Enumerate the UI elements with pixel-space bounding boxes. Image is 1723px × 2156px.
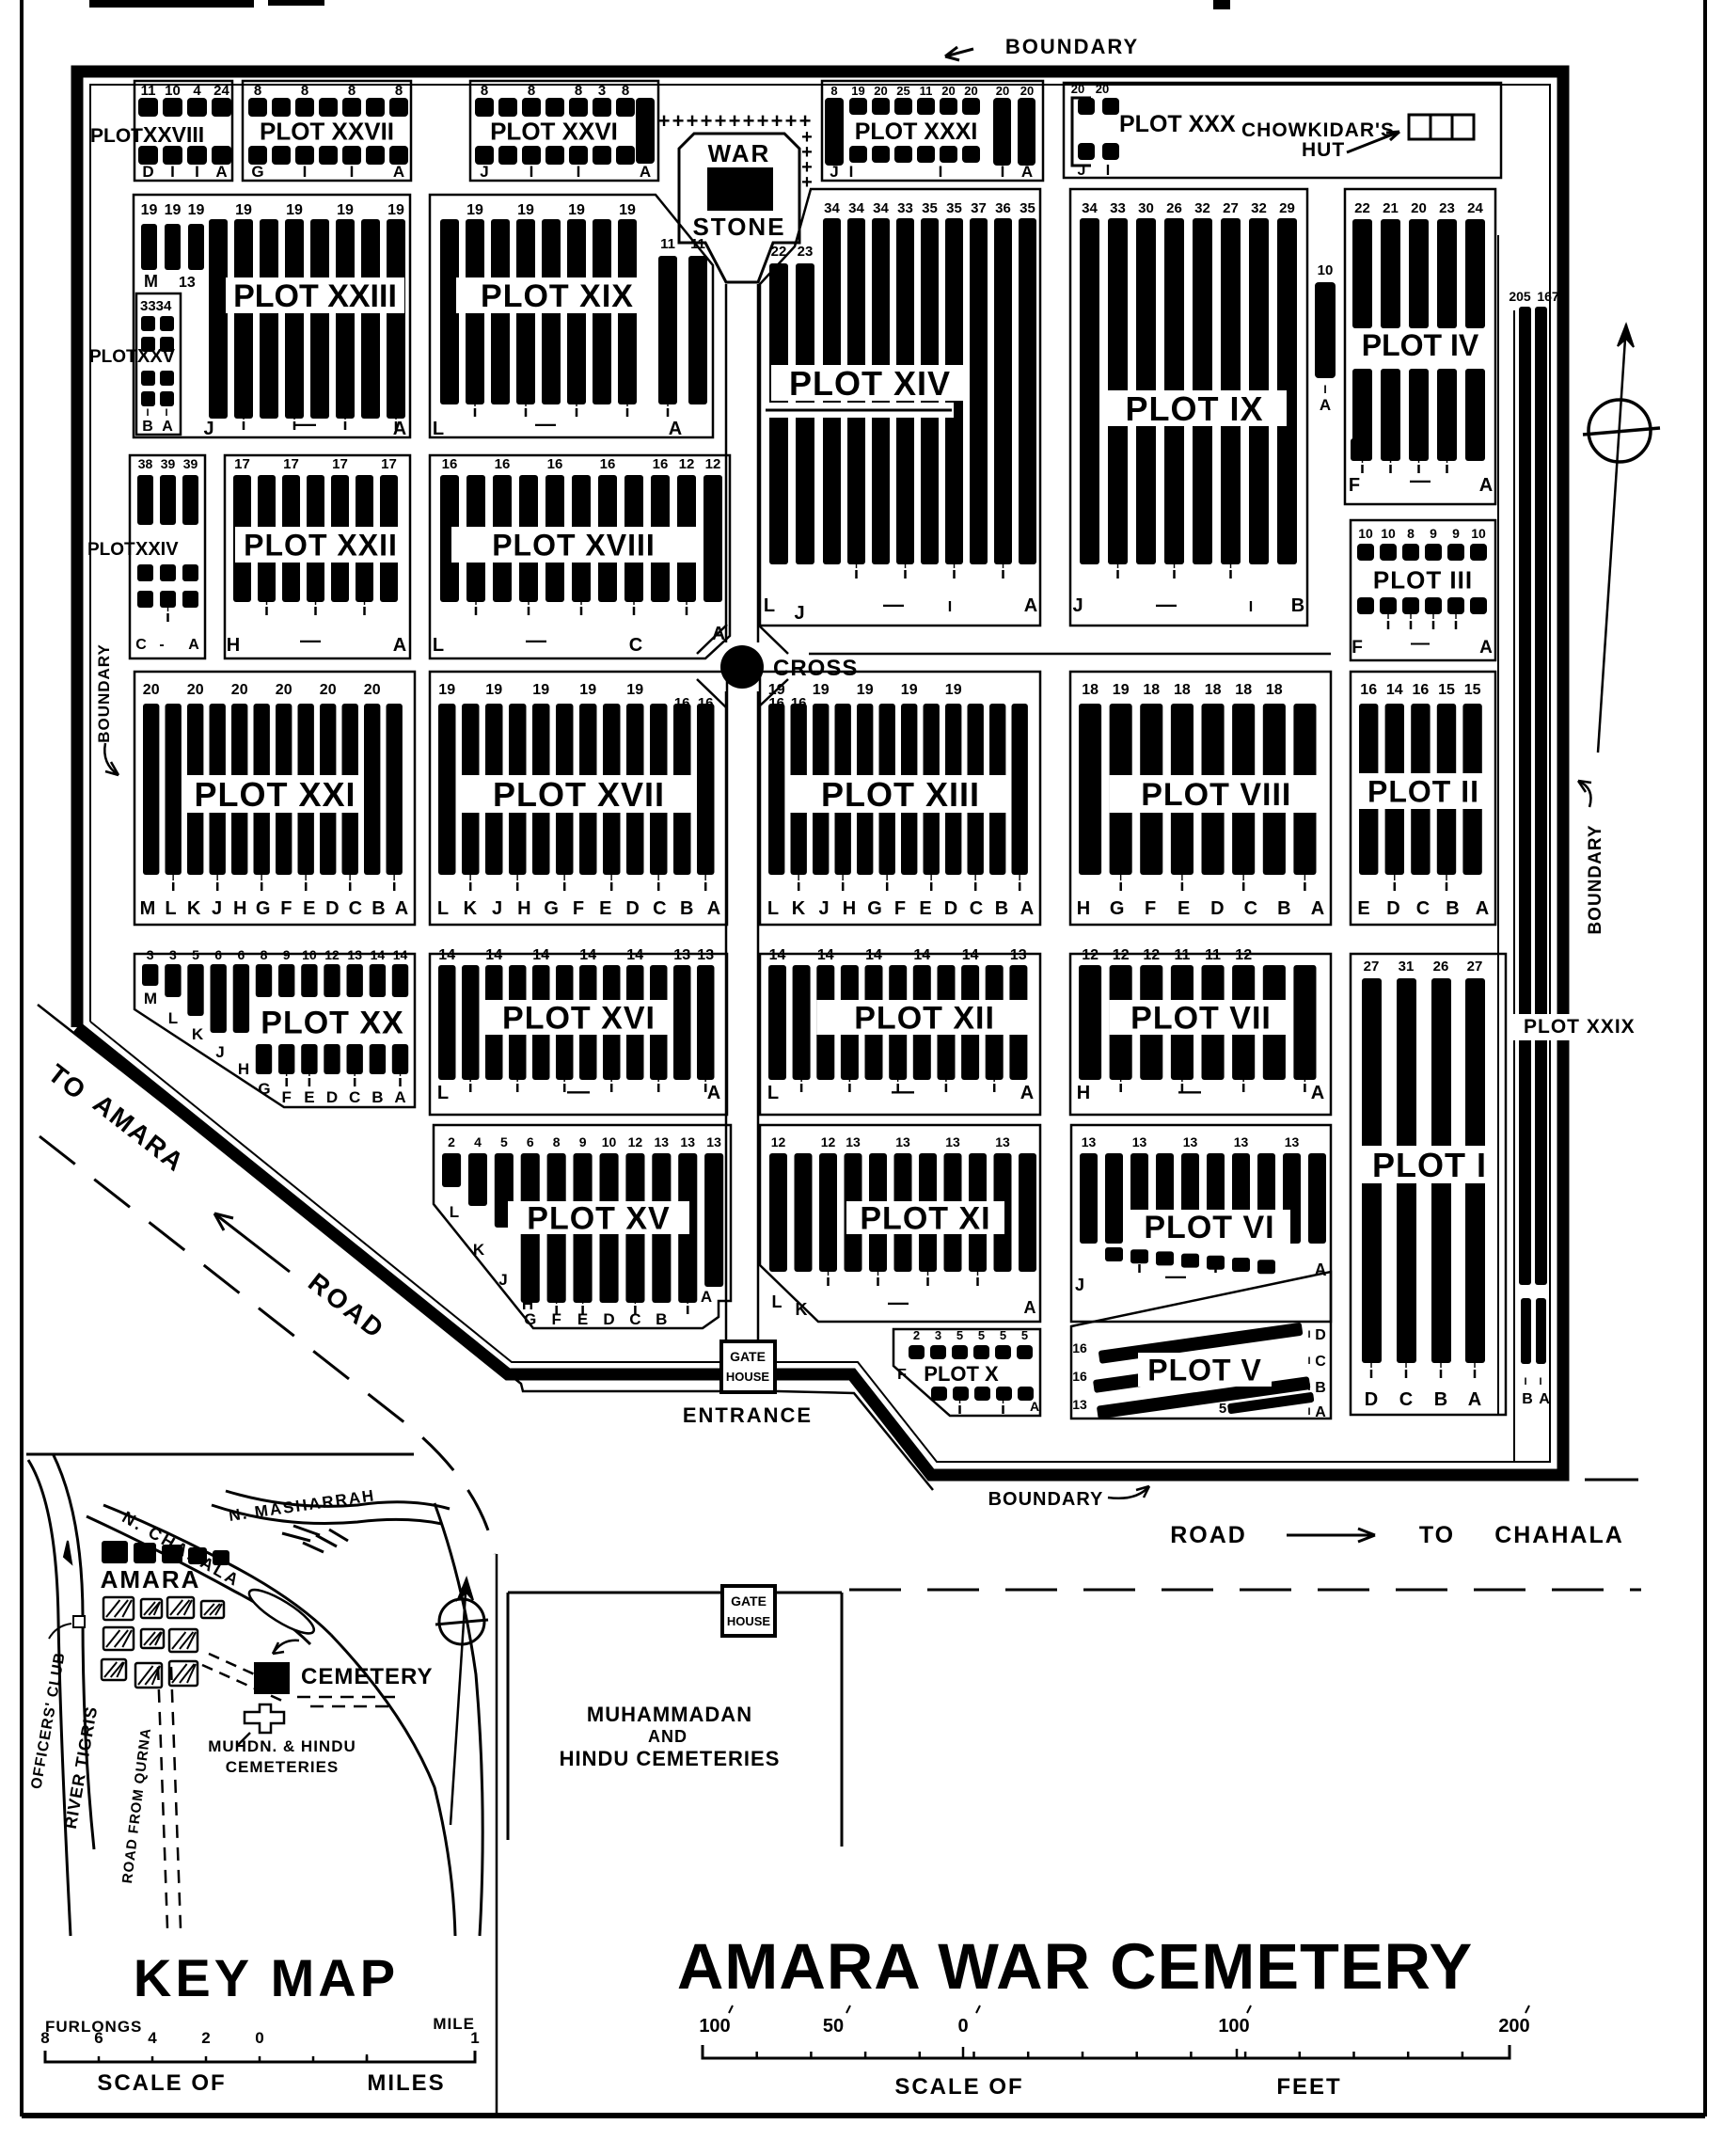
svg-text:I: I <box>475 597 478 608</box>
svg-text:I: I <box>530 163 534 181</box>
svg-text:6: 6 <box>527 1134 534 1149</box>
svg-text:XXIV: XXIV <box>135 539 179 560</box>
svg-text:17: 17 <box>234 456 250 472</box>
svg-text:PLOT: PLOT <box>87 540 135 560</box>
svg-text:F: F <box>1352 638 1363 658</box>
svg-text:J: J <box>830 163 838 181</box>
svg-text:A: A <box>393 635 406 656</box>
svg-text:16: 16 <box>442 456 458 472</box>
svg-text:100: 100 <box>699 2016 730 2037</box>
svg-text:19: 19 <box>235 202 252 218</box>
svg-text:13: 13 <box>673 947 690 963</box>
svg-text:38: 38 <box>138 456 153 471</box>
svg-text:H: H <box>1077 898 1090 919</box>
svg-text:19: 19 <box>532 682 549 698</box>
svg-text:G: G <box>524 1310 536 1328</box>
svg-text:19: 19 <box>466 202 483 218</box>
svg-text:D: D <box>1210 898 1224 919</box>
svg-text:14: 14 <box>626 947 643 963</box>
svg-text:I: I <box>1304 873 1306 883</box>
svg-text:19: 19 <box>141 202 158 218</box>
svg-text:13: 13 <box>895 1134 910 1149</box>
svg-text:10: 10 <box>302 947 317 962</box>
svg-text:12: 12 <box>1113 947 1130 963</box>
svg-text:13: 13 <box>1234 1134 1249 1149</box>
svg-text:BOUNDARY: BOUNDARY <box>1586 824 1605 934</box>
svg-text:27: 27 <box>1467 959 1483 975</box>
svg-text:I: I <box>308 1069 311 1079</box>
svg-text:20: 20 <box>874 84 887 98</box>
svg-text:19: 19 <box>485 682 502 698</box>
svg-text:L: L <box>433 635 444 656</box>
svg-text:I: I <box>1361 455 1364 466</box>
svg-text:16: 16 <box>495 456 511 472</box>
svg-text:5: 5 <box>1000 1328 1006 1342</box>
svg-text:I: I <box>1002 561 1004 571</box>
svg-text:20: 20 <box>143 682 160 698</box>
svg-text:I: I <box>165 407 167 419</box>
svg-text:J: J <box>1075 1276 1084 1294</box>
svg-text:16: 16 <box>547 456 563 472</box>
svg-text:20: 20 <box>1411 200 1427 216</box>
svg-text:8: 8 <box>1407 526 1415 541</box>
svg-text:19: 19 <box>165 202 182 218</box>
svg-text:I: I <box>704 873 707 883</box>
svg-text:3: 3 <box>598 83 606 99</box>
svg-text:4: 4 <box>148 2029 157 2047</box>
svg-text:I: I <box>516 1074 519 1085</box>
svg-text:A: A <box>1311 898 1324 919</box>
svg-text:E: E <box>1357 898 1369 919</box>
svg-text:I: I <box>687 1296 689 1307</box>
svg-text:14: 14 <box>1386 682 1403 698</box>
svg-text:I: I <box>904 561 907 571</box>
svg-text:A: A <box>1479 638 1493 658</box>
svg-text:A: A <box>640 163 651 181</box>
svg-text:9: 9 <box>1452 526 1460 541</box>
svg-text:I: I <box>930 873 933 883</box>
svg-text:J: J <box>203 419 213 439</box>
svg-text:CEMETERY: CEMETERY <box>301 1664 433 1689</box>
svg-text:I: I <box>1307 1382 1310 1393</box>
svg-text:100: 100 <box>1218 2016 1249 2037</box>
svg-text:32: 32 <box>1194 200 1210 216</box>
svg-text:A: A <box>1479 475 1493 496</box>
svg-text:11: 11 <box>141 83 156 99</box>
svg-text:20: 20 <box>276 682 292 698</box>
svg-text:+: + <box>729 109 741 133</box>
svg-text:10: 10 <box>602 1134 617 1149</box>
svg-text:19: 19 <box>851 84 864 98</box>
svg-text:34: 34 <box>1082 200 1098 216</box>
svg-text:I: I <box>469 873 472 883</box>
svg-text:B: B <box>142 419 153 435</box>
svg-text:15: 15 <box>1464 682 1481 698</box>
svg-text:I: I <box>1119 1074 1122 1085</box>
svg-text:+: + <box>771 109 783 133</box>
svg-text:B: B <box>995 898 1008 919</box>
svg-text:10: 10 <box>1471 526 1486 541</box>
svg-text:J: J <box>212 898 222 919</box>
svg-text:HUT: HUT <box>1302 139 1345 161</box>
svg-text:+: + <box>701 109 713 133</box>
svg-text:16: 16 <box>674 695 690 711</box>
svg-text:E: E <box>577 1310 588 1328</box>
svg-text:4: 4 <box>474 1134 482 1149</box>
svg-text:WAR: WAR <box>708 139 771 167</box>
svg-text:13: 13 <box>1010 947 1027 963</box>
svg-text:I: I <box>1405 1360 1408 1371</box>
svg-text:—: — <box>295 412 316 436</box>
svg-text:BOUNDARY: BOUNDARY <box>1005 35 1139 58</box>
svg-text:8: 8 <box>261 947 268 962</box>
svg-text:C: C <box>135 637 147 653</box>
svg-text:G: G <box>1110 898 1125 919</box>
svg-text:A: A <box>1020 898 1034 919</box>
svg-text:—: — <box>892 1079 914 1104</box>
svg-text:8: 8 <box>395 83 403 99</box>
svg-text:I: I <box>474 399 477 409</box>
svg-text:F: F <box>897 1367 907 1383</box>
svg-text:14: 14 <box>817 947 834 963</box>
svg-text:I: I <box>974 873 977 883</box>
svg-text:C: C <box>1399 1389 1413 1410</box>
svg-text:M: M <box>140 898 156 919</box>
svg-text:0: 0 <box>255 2029 263 2047</box>
svg-text:34: 34 <box>824 200 840 216</box>
svg-text:I: I <box>1393 873 1396 883</box>
svg-text:PLOT II: PLOT II <box>1367 775 1479 809</box>
svg-text:FEET: FEET <box>1276 2074 1341 2100</box>
svg-text:13: 13 <box>1232 714 1248 730</box>
svg-text:13: 13 <box>706 1134 721 1149</box>
svg-text:I: I <box>939 163 943 181</box>
svg-text:AND: AND <box>648 1727 688 1746</box>
svg-text:I: I <box>848 1074 851 1085</box>
svg-text:19: 19 <box>438 682 455 698</box>
svg-text:37: 37 <box>971 200 987 216</box>
svg-text:C: C <box>970 898 983 919</box>
svg-text:19: 19 <box>337 202 354 218</box>
svg-text:H: H <box>517 898 530 919</box>
svg-text:I: I <box>633 597 636 608</box>
svg-text:5: 5 <box>978 1328 985 1342</box>
svg-text:13: 13 <box>655 1134 670 1149</box>
svg-text:A: A <box>162 419 173 435</box>
svg-text:16: 16 <box>698 695 714 711</box>
svg-text:25: 25 <box>896 84 909 98</box>
svg-text:G: G <box>544 898 559 919</box>
svg-text:14: 14 <box>371 947 386 962</box>
svg-text:I: I <box>170 163 175 181</box>
svg-text:8: 8 <box>481 83 488 99</box>
svg-text:I: I <box>1214 1255 1217 1265</box>
svg-text:I: I <box>1446 873 1448 883</box>
svg-text:10: 10 <box>1381 526 1396 541</box>
svg-text:E: E <box>1178 898 1190 919</box>
svg-text:B: B <box>680 898 693 919</box>
svg-text:XXV: XXV <box>137 346 176 367</box>
svg-text:—: — <box>535 412 556 436</box>
svg-text:CEMETERIES: CEMETERIES <box>226 1758 340 1776</box>
svg-text:24: 24 <box>1467 200 1483 216</box>
svg-text:GATE: GATE <box>730 1349 766 1364</box>
svg-text:E: E <box>304 1088 314 1106</box>
svg-text:I: I <box>1001 163 1005 181</box>
svg-text:I: I <box>576 399 578 409</box>
svg-text:27: 27 <box>1223 200 1239 216</box>
svg-text:—: — <box>567 1079 590 1104</box>
svg-text:14: 14 <box>769 947 786 963</box>
svg-text:33: 33 <box>1110 200 1126 216</box>
svg-text:13: 13 <box>1285 1134 1300 1149</box>
svg-text:PLOT XV: PLOT XV <box>527 1201 670 1237</box>
svg-text:I: I <box>1249 599 1253 615</box>
svg-text:PLOT I: PLOT I <box>1372 1146 1487 1184</box>
svg-text:5: 5 <box>956 1328 963 1342</box>
svg-text:I: I <box>580 597 583 608</box>
svg-text:J: J <box>1078 163 1086 179</box>
svg-text:L: L <box>767 898 779 919</box>
svg-text:15: 15 <box>1438 682 1455 698</box>
svg-text:3: 3 <box>147 947 154 962</box>
svg-text:167: 167 <box>1537 289 1559 304</box>
svg-text:A: A <box>188 637 199 653</box>
svg-text:PLOT XIII: PLOT XIII <box>821 775 980 814</box>
svg-text:18: 18 <box>1205 682 1222 698</box>
svg-text:26: 26 <box>1433 959 1449 975</box>
svg-text:I: I <box>349 873 352 883</box>
svg-text:21: 21 <box>1383 200 1399 216</box>
svg-text:20: 20 <box>996 84 1009 98</box>
svg-text:17: 17 <box>283 456 299 472</box>
svg-text:I: I <box>216 873 219 883</box>
svg-text:I: I <box>1440 1360 1443 1371</box>
svg-text:11: 11 <box>920 84 933 98</box>
svg-text:8: 8 <box>553 1134 561 1149</box>
svg-text:19: 19 <box>286 202 303 218</box>
svg-text:H: H <box>238 1060 249 1078</box>
svg-text:18: 18 <box>1174 682 1191 698</box>
svg-text:I: I <box>314 597 317 608</box>
svg-text:16: 16 <box>600 456 616 472</box>
svg-text:+: + <box>785 109 798 133</box>
svg-text:I: I <box>563 873 566 883</box>
svg-text:20: 20 <box>1020 84 1034 98</box>
svg-text:AMARA: AMARA <box>101 1565 201 1593</box>
svg-text:16: 16 <box>768 695 784 711</box>
svg-text:I: I <box>577 163 581 181</box>
svg-text:20: 20 <box>187 682 204 698</box>
svg-text:C: C <box>349 898 362 919</box>
svg-text:PLOT XXII: PLOT XXII <box>244 529 398 563</box>
svg-text:I: I <box>827 1268 830 1278</box>
svg-text:—: — <box>1410 468 1431 492</box>
svg-text:GATE: GATE <box>731 1593 767 1609</box>
svg-text:19: 19 <box>517 202 534 218</box>
svg-text:14: 14 <box>579 947 596 963</box>
svg-text:9: 9 <box>1430 526 1437 541</box>
svg-text:0: 0 <box>957 2016 968 2037</box>
svg-text:22: 22 <box>771 244 787 260</box>
svg-text:I: I <box>1446 455 1448 466</box>
svg-text:J: J <box>1072 595 1083 616</box>
svg-text:CHOWKIDAR'S: CHOWKIDAR'S <box>1241 119 1395 141</box>
svg-text:I: I <box>146 407 149 419</box>
svg-text:STONE: STONE <box>692 213 785 241</box>
svg-text:14: 14 <box>438 947 455 963</box>
svg-text:F: F <box>1145 898 1156 919</box>
svg-text:I: I <box>172 873 175 883</box>
svg-text:14: 14 <box>532 947 549 963</box>
svg-text:12: 12 <box>1082 947 1099 963</box>
svg-text:+: + <box>743 109 755 133</box>
svg-text:C: C <box>1416 898 1430 919</box>
svg-text:A: A <box>707 1083 720 1103</box>
svg-text:B: B <box>371 1088 383 1106</box>
svg-text:I: I <box>1307 1355 1310 1367</box>
svg-text:H: H <box>233 898 246 919</box>
svg-text:13: 13 <box>1183 1134 1198 1149</box>
svg-text:B: B <box>1277 898 1290 919</box>
svg-text:9: 9 <box>579 1134 587 1149</box>
svg-text:5: 5 <box>1021 1328 1028 1342</box>
svg-text:B: B <box>371 898 385 919</box>
svg-text:A: A <box>1539 1391 1550 1407</box>
svg-text:I: I <box>469 1074 472 1085</box>
svg-text:I: I <box>363 597 366 608</box>
svg-text:PLOT X: PLOT X <box>924 1362 999 1386</box>
svg-text:ENTRANCE: ENTRANCE <box>683 1403 813 1427</box>
svg-text:8: 8 <box>622 83 629 99</box>
svg-text:8: 8 <box>528 83 535 99</box>
svg-text:G: G <box>867 898 882 919</box>
svg-text:A: A <box>1311 1083 1324 1103</box>
svg-text:D: D <box>326 1088 338 1106</box>
svg-text:19: 19 <box>626 682 643 698</box>
svg-text:I: I <box>657 1074 660 1085</box>
svg-text:3334: 3334 <box>140 298 172 314</box>
svg-text:26: 26 <box>1166 200 1182 216</box>
svg-text:B: B <box>1315 1380 1326 1396</box>
svg-text:29: 29 <box>1279 200 1295 216</box>
svg-text:AMARA WAR CEMETERY: AMARA WAR CEMETERY <box>677 1930 1473 2003</box>
svg-text:J: J <box>818 898 829 919</box>
svg-text:12: 12 <box>628 1134 643 1149</box>
svg-text:+: + <box>757 109 769 133</box>
svg-text:I: I <box>1002 1396 1004 1406</box>
svg-text:19: 19 <box>579 682 596 698</box>
svg-text:A: A <box>1020 1083 1034 1103</box>
svg-text:A: A <box>394 1088 405 1106</box>
svg-text:HOUSE: HOUSE <box>726 1370 770 1384</box>
svg-text:C: C <box>1244 898 1257 919</box>
svg-text:23: 23 <box>798 244 814 260</box>
svg-text:BOUNDARY: BOUNDARY <box>95 643 113 743</box>
svg-text:PLOT: PLOT <box>89 347 137 367</box>
svg-text:B: B <box>656 1310 667 1328</box>
svg-text:I: I <box>1307 1329 1310 1340</box>
svg-text:A: A <box>393 419 406 439</box>
svg-text:I: I <box>581 1296 584 1307</box>
svg-text:I: I <box>1539 1376 1541 1387</box>
svg-text:I: I <box>1242 1074 1245 1085</box>
svg-text:H: H <box>227 635 240 656</box>
svg-text:A: A <box>701 1288 712 1306</box>
svg-text:I: I <box>798 873 800 883</box>
svg-text:I: I <box>354 1069 356 1079</box>
svg-text:I: I <box>626 399 629 409</box>
svg-text:I: I <box>1019 873 1021 883</box>
svg-text:20: 20 <box>231 682 248 698</box>
svg-text:14: 14 <box>485 947 502 963</box>
svg-text:I: I <box>926 1268 929 1278</box>
svg-text:F: F <box>894 898 906 919</box>
svg-text:K: K <box>192 1025 204 1043</box>
svg-text:+: + <box>687 109 699 133</box>
svg-text:20: 20 <box>364 682 381 698</box>
svg-text:F: F <box>573 898 584 919</box>
svg-text:13: 13 <box>846 1134 861 1149</box>
svg-text:I: I <box>657 873 660 883</box>
svg-text:A: A <box>1315 1260 1327 1279</box>
svg-text:I: I <box>945 1074 948 1085</box>
svg-text:—: — <box>1156 593 1177 616</box>
svg-text:SCALE OF: SCALE OF <box>97 2070 226 2096</box>
svg-text:27: 27 <box>1364 959 1380 975</box>
svg-text:K: K <box>187 898 201 919</box>
svg-text:PLOT VI: PLOT VI <box>1144 1210 1274 1245</box>
svg-text:13: 13 <box>1132 1134 1147 1149</box>
svg-text:PLOT XVI: PLOT XVI <box>502 1001 656 1037</box>
svg-text:I: I <box>1304 1074 1306 1085</box>
svg-text:PLOT XI: PLOT XI <box>860 1201 990 1237</box>
svg-text:3: 3 <box>169 947 177 962</box>
svg-text:9: 9 <box>283 947 291 962</box>
svg-text:16: 16 <box>791 695 807 711</box>
svg-text:13: 13 <box>697 947 714 963</box>
svg-text:14: 14 <box>962 947 979 963</box>
svg-text:I: I <box>399 1069 402 1079</box>
svg-text:I: I <box>1474 1360 1477 1371</box>
svg-text:PLOT XXIX: PLOT XXIX <box>1524 1016 1636 1038</box>
svg-text:—: — <box>1165 1264 1186 1288</box>
svg-text:PLOT XXX: PLOT XXX <box>1119 111 1236 137</box>
svg-text:J: J <box>480 163 488 181</box>
svg-text:5: 5 <box>500 1134 508 1149</box>
svg-text:A: A <box>395 898 408 919</box>
svg-text:20: 20 <box>1096 82 1109 96</box>
svg-text:I: I <box>265 597 268 608</box>
svg-text:6: 6 <box>1353 420 1361 436</box>
svg-text:MUHAMMADAN: MUHAMMADAN <box>587 1703 752 1726</box>
svg-text:I: I <box>1370 1360 1373 1371</box>
svg-text:M: M <box>144 272 158 291</box>
svg-text:12: 12 <box>771 1134 786 1149</box>
svg-text:5: 5 <box>192 947 199 962</box>
svg-text:L: L <box>433 419 444 439</box>
svg-text:8: 8 <box>348 83 356 99</box>
svg-text:23: 23 <box>1439 200 1455 216</box>
svg-text:I: I <box>528 597 530 608</box>
svg-text:J: J <box>492 898 502 919</box>
svg-text:HOUSE: HOUSE <box>727 1614 771 1628</box>
svg-text:L: L <box>450 1203 459 1221</box>
svg-text:34: 34 <box>848 200 864 216</box>
svg-text:A: A <box>1024 595 1037 616</box>
svg-text:—: — <box>883 593 904 616</box>
svg-text:L: L <box>165 898 176 919</box>
